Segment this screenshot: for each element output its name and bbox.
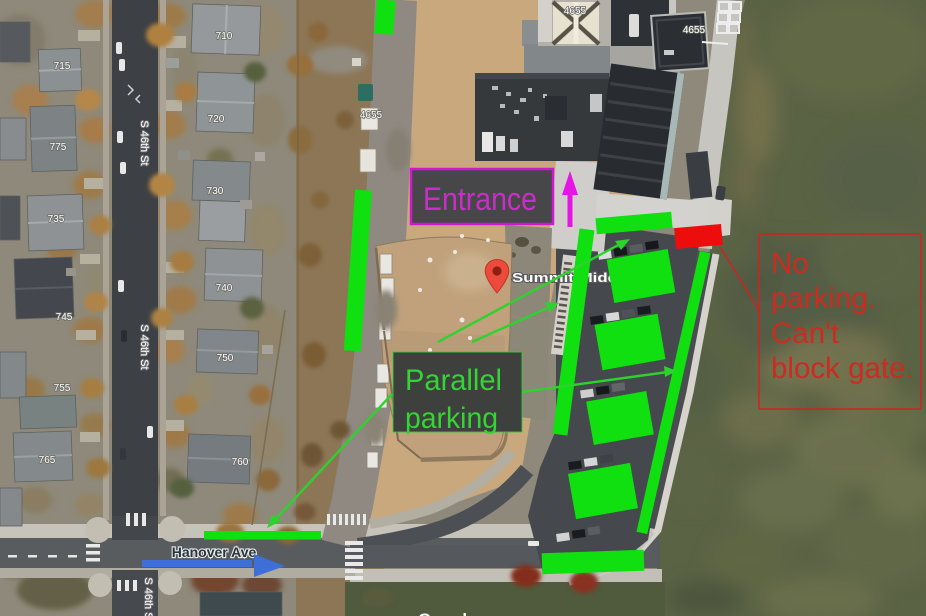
svg-text:710: 710 (216, 31, 233, 42)
svg-text:4655: 4655 (360, 110, 383, 121)
svg-text:No: No (771, 247, 809, 280)
svg-text:block gate.: block gate. (771, 352, 914, 385)
svg-text:Hanover Ave: Hanover Ave (172, 544, 257, 560)
svg-text:740: 740 (216, 283, 233, 294)
svg-text:S 46th St: S 46th St (138, 120, 150, 165)
svg-text:755: 755 (54, 383, 71, 394)
svg-text:parking.: parking. (771, 282, 876, 315)
svg-text:720: 720 (208, 114, 225, 125)
svg-text:775: 775 (50, 142, 67, 153)
svg-text:4655: 4655 (683, 25, 706, 36)
svg-text:S 46th St: S 46th St (138, 324, 150, 369)
svg-text:730: 730 (207, 186, 224, 197)
svg-text:750: 750 (217, 353, 234, 364)
svg-text:Can't: Can't (771, 317, 839, 350)
svg-text:745: 745 (56, 312, 73, 323)
svg-text:765: 765 (39, 455, 56, 466)
svg-text:Entrance: Entrance (423, 181, 537, 217)
svg-text:S 46th St: S 46th St (142, 577, 154, 616)
svg-text:Google: Google (418, 610, 477, 616)
svg-text:735: 735 (48, 214, 65, 225)
svg-text:715: 715 (54, 61, 71, 72)
svg-text:parking: parking (405, 402, 498, 435)
svg-text:760: 760 (232, 457, 249, 468)
svg-text:4655: 4655 (564, 6, 587, 17)
svg-text:Parallel: Parallel (405, 364, 502, 397)
